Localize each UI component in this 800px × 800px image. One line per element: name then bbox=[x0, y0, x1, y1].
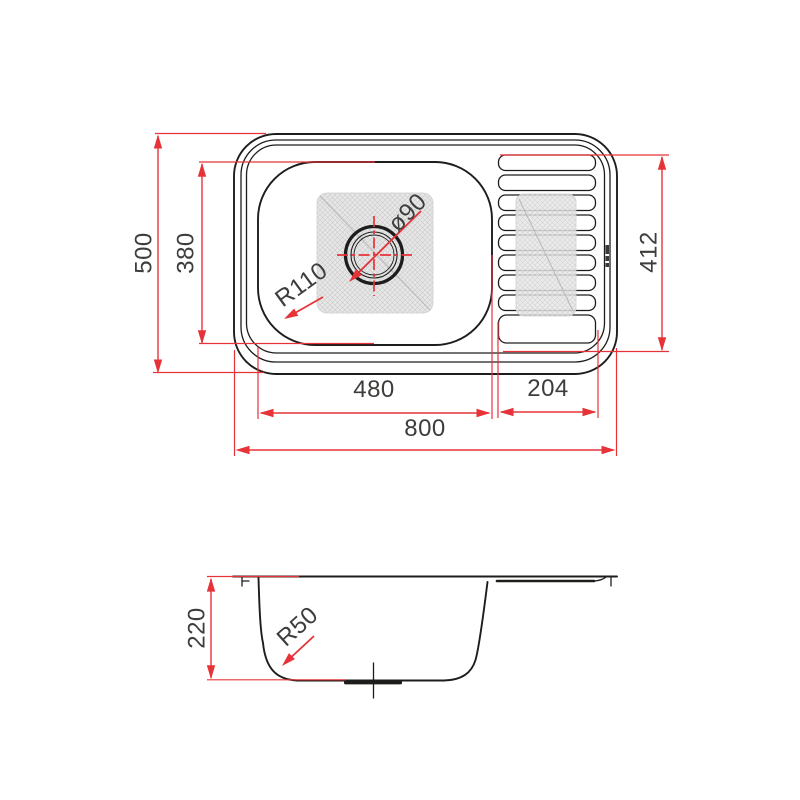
arrowhead bbox=[198, 330, 206, 344]
dim-drainboard-depth-label: 412 bbox=[635, 231, 662, 273]
arrowhead bbox=[500, 408, 514, 416]
dim-bowl-depth-label: 380 bbox=[172, 232, 199, 274]
arrowhead bbox=[477, 409, 491, 417]
dim-drainboard-width-label: 204 bbox=[527, 375, 569, 402]
dim-bowl-width-label: 480 bbox=[353, 376, 395, 403]
leader-bottom-corner-radius: R50 bbox=[272, 601, 324, 669]
dim-bottom-corner-radius-label: R50 bbox=[272, 601, 324, 652]
arrowhead bbox=[658, 337, 666, 351]
dim-bowl-height-label: 220 bbox=[183, 607, 210, 649]
sink-technical-drawing-page: 500 380 412 480 bbox=[0, 0, 800, 800]
dimension-bowl-height: 220 bbox=[183, 577, 346, 680]
dim-overall-width-label: 800 bbox=[404, 415, 446, 442]
arrowhead bbox=[260, 409, 274, 417]
drainboard-hatch-area bbox=[516, 194, 576, 316]
rib-wide bbox=[499, 315, 596, 343]
side-left-edge-lip bbox=[242, 577, 249, 586]
arrowhead bbox=[658, 156, 666, 170]
arrowhead bbox=[207, 665, 215, 679]
sink-technical-drawing: 500 380 412 480 bbox=[0, 0, 800, 800]
arrowhead bbox=[583, 408, 597, 416]
side-drainboard-right-curve bbox=[594, 577, 606, 581]
dimension-overall-width: 800 bbox=[235, 348, 617, 456]
dim-overall-depth-label: 500 bbox=[130, 232, 157, 274]
arrowhead bbox=[154, 135, 162, 149]
rib bbox=[499, 175, 596, 191]
arrowhead bbox=[602, 446, 616, 454]
top-view: 500 380 412 480 bbox=[130, 134, 669, 457]
brand-mark-icon bbox=[606, 245, 610, 267]
side-drain-fitting bbox=[344, 663, 402, 698]
rib bbox=[499, 155, 596, 171]
side-view: 220 R50 bbox=[183, 577, 617, 699]
arrowhead bbox=[154, 360, 162, 374]
dimension-drainboard-width: 204 bbox=[498, 322, 598, 418]
arrowhead bbox=[236, 446, 250, 454]
arrowhead bbox=[207, 578, 215, 592]
arrowhead bbox=[198, 163, 206, 177]
